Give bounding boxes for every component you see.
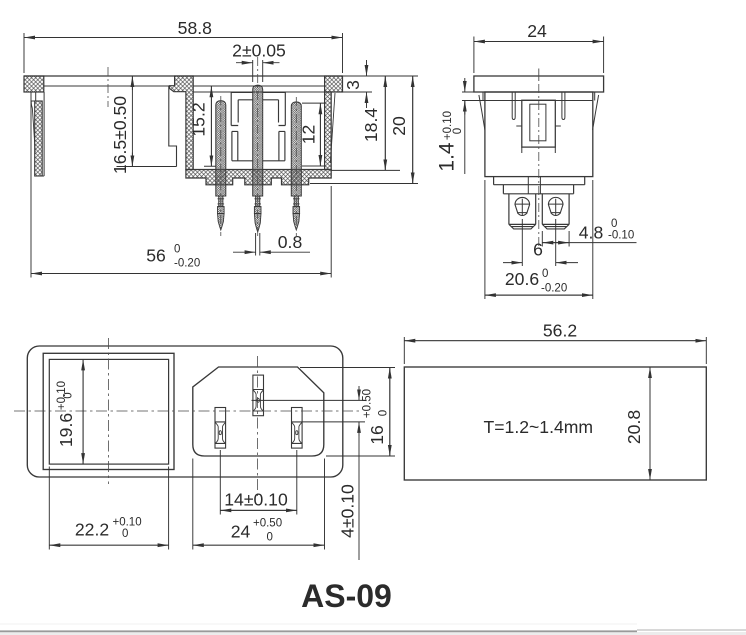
svg-text:0: 0	[174, 244, 180, 256]
svg-text:0: 0	[452, 128, 464, 134]
svg-text:20: 20	[389, 116, 409, 136]
svg-text:58.8: 58.8	[178, 18, 212, 38]
svg-text:-0.20: -0.20	[541, 283, 567, 295]
svg-text:+0.50: +0.50	[361, 389, 373, 418]
svg-text:T=1.2~1.4mm: T=1.2~1.4mm	[484, 417, 594, 437]
svg-text:+0.50: +0.50	[253, 518, 282, 530]
svg-text:22.2: 22.2	[75, 520, 109, 540]
svg-text:20.6: 20.6	[505, 269, 539, 289]
svg-text:12: 12	[299, 125, 319, 145]
svg-text:15.2: 15.2	[189, 102, 209, 136]
svg-text:18.4: 18.4	[361, 108, 381, 142]
svg-text:1.4: 1.4	[436, 142, 459, 172]
svg-text:0: 0	[611, 218, 617, 230]
svg-text:16: 16	[367, 425, 387, 445]
svg-text:0: 0	[267, 532, 273, 544]
svg-text:+0.10: +0.10	[442, 111, 454, 140]
svg-text:4±0.10: 4±0.10	[338, 484, 358, 538]
svg-text:-0.10: -0.10	[608, 230, 634, 242]
svg-text:56.2: 56.2	[543, 321, 577, 341]
svg-text:-0.20: -0.20	[174, 258, 200, 270]
svg-text:0: 0	[63, 392, 75, 398]
svg-text:4.8: 4.8	[579, 223, 604, 243]
svg-text:2±0.05: 2±0.05	[232, 41, 286, 61]
svg-text:6: 6	[533, 240, 543, 260]
svg-text:+0.10: +0.10	[113, 517, 142, 529]
svg-text:0.8: 0.8	[278, 232, 303, 252]
svg-text:14±0.10: 14±0.10	[224, 490, 288, 510]
svg-text:56: 56	[146, 246, 166, 266]
svg-text:19.6: 19.6	[56, 413, 76, 447]
svg-text:24: 24	[231, 522, 251, 542]
svg-text:0: 0	[122, 528, 128, 540]
svg-text:20.8: 20.8	[624, 410, 644, 444]
svg-text:3: 3	[343, 80, 363, 90]
svg-text:0: 0	[377, 410, 389, 416]
svg-text:0: 0	[542, 268, 548, 280]
svg-text:16.5±0.50: 16.5±0.50	[110, 96, 130, 174]
svg-text:24: 24	[527, 21, 547, 41]
svg-text:AS-09: AS-09	[301, 578, 392, 614]
